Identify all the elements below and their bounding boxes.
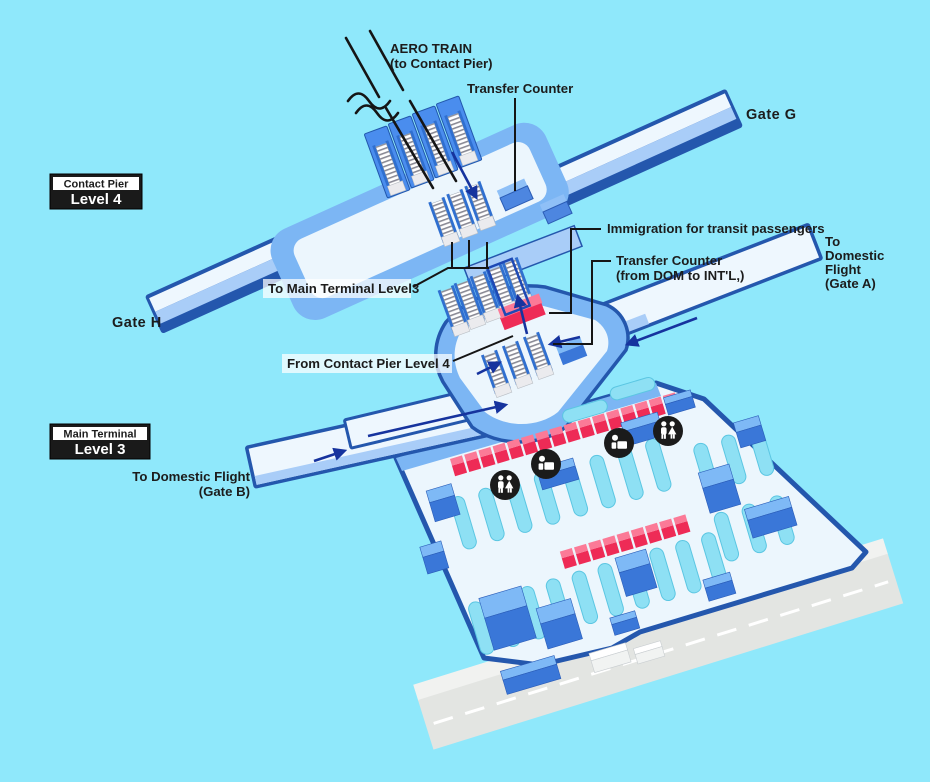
legend-contact-pier-title: Contact Pier [64,179,130,191]
restroom-icon [653,416,683,446]
map-canvas: AERO TRAIN (to Contact Pier) Transfer Co… [0,0,930,782]
gate-a-label-3: Flight [825,262,861,277]
transfer-counter-label: Transfer Counter [467,81,573,96]
gate-g-label: Gate G [746,107,797,123]
information-counter-icon [531,449,561,479]
aero-train-label-2: (to Contact Pier) [390,56,493,71]
airport-terminal-map: AERO TRAIN (to Contact Pier) Transfer Co… [0,0,930,782]
gate-b-label: To Domestic Flight [132,469,250,484]
restroom-icon [490,470,520,500]
legend-main-terminal: Main Terminal Level 3 [50,424,150,459]
aero-train-label: AERO TRAIN [390,41,472,56]
gate-a-label-2: Domestic [825,248,884,263]
gate-a-label-4: (Gate A) [825,276,876,291]
legend-main-terminal-level: Level 3 [75,441,126,458]
gate-a-label: To [825,234,840,249]
from-contact-pier-label: From Contact Pier Level 4 [287,356,450,371]
transfer-counter-main-label: Transfer Counter [616,253,722,268]
immigration-label: Immigration for transit passengers [607,221,825,236]
legend-contact-pier: Contact Pier Level 4 [50,174,142,209]
transfer-counter-main-label-2: (from DOM to INT'L,) [616,268,744,283]
gate-h-label: Gate H [112,315,162,331]
legend-contact-pier-level: Level 4 [71,191,123,208]
legend-main-terminal-title: Main Terminal [63,429,136,441]
information-counter-icon [604,428,634,458]
to-main-terminal-label: To Main Terminal Level3 [268,281,419,296]
gate-b-label-2: (Gate B) [199,484,250,499]
